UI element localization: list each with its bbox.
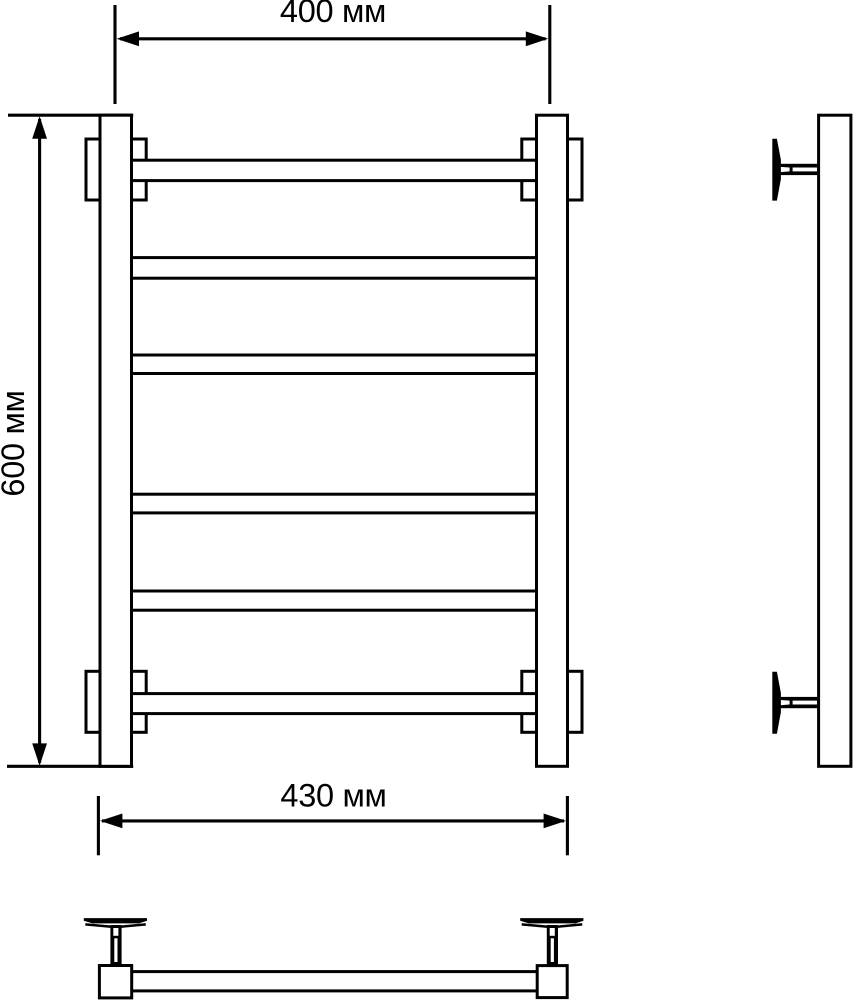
svg-text:400 мм: 400 мм (280, 0, 386, 29)
svg-text:600 мм: 600 мм (0, 390, 31, 496)
svg-text:430 мм: 430 мм (280, 778, 386, 814)
